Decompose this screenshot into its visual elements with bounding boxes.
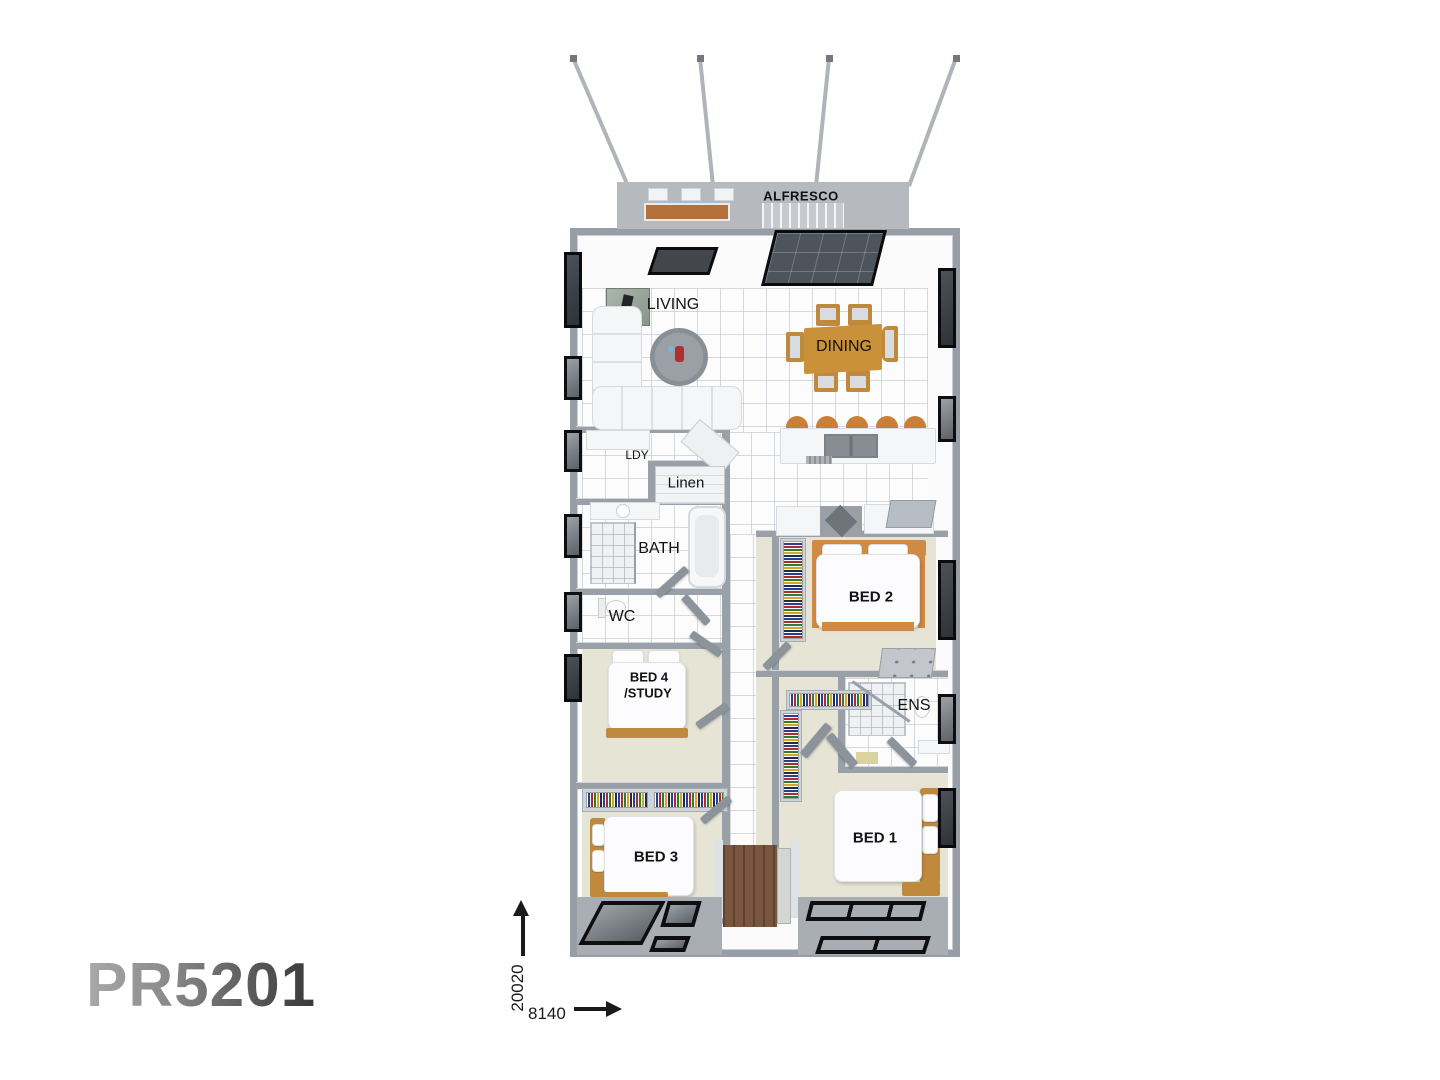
outdoor-chair xyxy=(648,188,668,201)
depth-arrow-line xyxy=(521,916,525,956)
label-bath: BATH xyxy=(638,540,679,558)
skylight xyxy=(647,247,718,275)
drainer xyxy=(806,456,832,464)
chair-seat xyxy=(820,308,836,320)
wall-ens-bottom xyxy=(845,766,948,773)
chair-seat xyxy=(885,330,894,358)
wardrobe-clothes xyxy=(586,792,648,808)
label-bed4-line1: BED 4 xyxy=(630,670,668,685)
chair-seat xyxy=(850,376,866,388)
entry-sidelight xyxy=(777,848,791,924)
width-arrow-line xyxy=(574,1007,606,1011)
toilet-tank xyxy=(598,598,606,618)
label-bed3: BED 3 xyxy=(634,849,678,866)
plan-code: PR5201 xyxy=(86,950,316,1021)
window xyxy=(564,430,582,472)
dining-chair xyxy=(882,326,898,362)
outdoor-chair xyxy=(681,188,701,201)
depth-arrow-head xyxy=(513,900,529,916)
wardrobe-clothes xyxy=(783,713,799,799)
toy xyxy=(668,346,674,352)
window xyxy=(564,654,582,702)
glass-roof xyxy=(761,230,887,286)
label-alfresco: ALFRESCO xyxy=(763,189,839,204)
label-bed4-line2: /STUDY xyxy=(624,686,672,701)
basin xyxy=(616,504,630,518)
label-wc: WC xyxy=(609,608,636,626)
bed1-bench xyxy=(902,882,940,896)
fridge-top xyxy=(886,500,937,528)
dining-chair xyxy=(846,370,870,392)
label-bed2: BED 2 xyxy=(849,589,893,606)
person-figure xyxy=(675,346,684,362)
facade-window xyxy=(806,901,927,921)
window xyxy=(938,268,956,348)
label-ens: ENS xyxy=(898,697,931,715)
sofa-horizontal xyxy=(592,386,742,430)
floorplan-canvas: ALFRESCO LIVING DINING LDY Linen BATH WC… xyxy=(0,0,1440,1080)
deck-steps xyxy=(762,203,844,228)
window xyxy=(564,252,582,328)
chair-seat xyxy=(818,376,834,388)
dining-chair xyxy=(816,304,840,326)
pillow xyxy=(922,826,938,854)
window xyxy=(938,788,956,848)
facade-window xyxy=(815,936,931,954)
outdoor-table xyxy=(644,203,730,221)
chair-seat xyxy=(790,336,800,358)
entry-timber-floor xyxy=(723,845,777,927)
pillow xyxy=(922,794,938,822)
rangehood xyxy=(820,506,862,536)
window xyxy=(938,396,956,442)
rangehood-funnel xyxy=(825,505,858,538)
kitchen-sink xyxy=(824,434,878,458)
bed2-footboard xyxy=(822,622,914,631)
dresser xyxy=(878,648,936,678)
wall xyxy=(576,588,728,595)
window xyxy=(938,694,956,744)
laundry-bench xyxy=(586,430,650,450)
window xyxy=(564,514,582,558)
label-dining: DINING xyxy=(816,338,872,356)
bathtub xyxy=(688,506,726,588)
tub-inner xyxy=(695,515,719,577)
dining-chair xyxy=(786,332,804,362)
width-dimension: 8140 xyxy=(528,1004,566,1024)
window xyxy=(564,592,582,632)
outdoor-chair xyxy=(714,188,734,201)
chair-seat xyxy=(852,308,868,320)
dining-chair xyxy=(848,304,872,326)
label-laundry: LDY xyxy=(625,448,648,462)
shower xyxy=(590,522,636,584)
label-bed1: BED 1 xyxy=(853,830,897,847)
window xyxy=(938,560,956,640)
wardrobe-clothes xyxy=(783,541,803,639)
wardrobe-clothes xyxy=(789,693,869,707)
facade-window xyxy=(649,936,691,952)
label-linen: Linen xyxy=(668,475,705,492)
bath-mat xyxy=(856,752,878,764)
label-living: LIVING xyxy=(647,296,699,314)
wall-linen xyxy=(648,464,655,504)
bed4-footboard xyxy=(606,728,688,738)
window xyxy=(564,356,582,400)
width-arrow-head xyxy=(606,1001,622,1017)
